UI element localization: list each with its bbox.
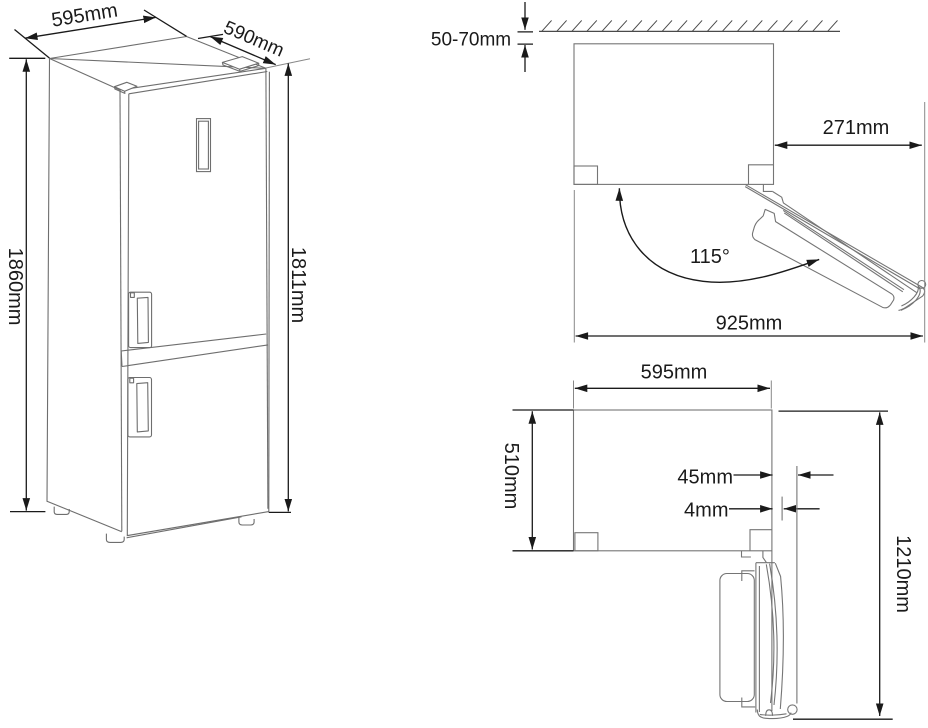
svg-text:115°: 115° <box>690 246 730 268</box>
svg-text:45mm: 45mm <box>677 466 733 488</box>
svg-text:50-70mm: 50-70mm <box>431 30 511 51</box>
svg-text:595mm: 595mm <box>50 0 119 32</box>
svg-text:595mm: 595mm <box>641 362 708 384</box>
svg-text:510mm: 510mm <box>500 443 522 510</box>
svg-text:1860mm: 1860mm <box>4 248 26 326</box>
svg-text:925mm: 925mm <box>716 313 783 335</box>
svg-text:271mm: 271mm <box>823 117 890 139</box>
svg-text:1210mm: 1210mm <box>892 535 914 613</box>
svg-text:1811mm: 1811mm <box>287 247 309 323</box>
svg-text:4mm: 4mm <box>684 500 728 522</box>
